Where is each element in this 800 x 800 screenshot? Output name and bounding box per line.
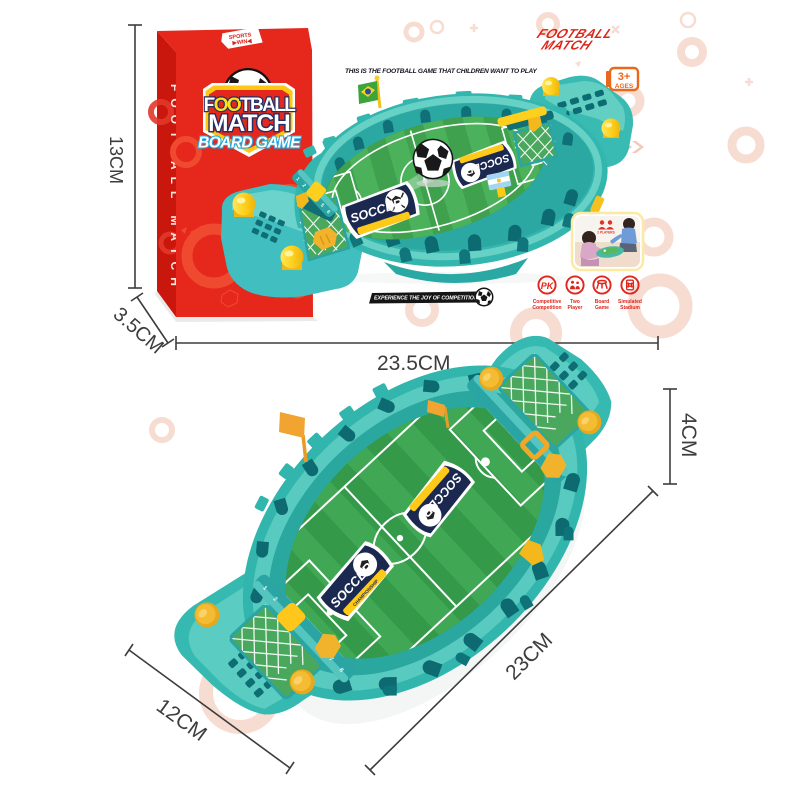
svg-text:2 PLAYERS: 2 PLAYERS [597,231,614,235]
svg-text:BOARD GAME: BOARD GAME [198,135,301,152]
svg-text:MATCH: MATCH [539,38,595,52]
svg-text:Stadium: Stadium [620,305,640,311]
svg-text:3+: 3+ [618,71,631,83]
svg-text:MATCH: MATCH [208,110,290,137]
svg-text:Game: Game [595,305,609,311]
svg-text:PK: PK [541,281,555,291]
svg-text:THIS IS THE FOOTBALL GAME THAT: THIS IS THE FOOTBALL GAME THAT CHILDREN … [345,68,538,75]
svg-text:AGES: AGES [615,83,634,90]
svg-text:EXPERIENCE THE JOY OF COMPETIT: EXPERIENCE THE JOY OF COMPETITION [374,296,478,302]
svg-text:Player: Player [567,305,582,311]
svg-text:4CM: 4CM [677,413,700,457]
svg-text:Competition: Competition [532,305,561,311]
svg-text:13CM: 13CM [106,136,126,184]
